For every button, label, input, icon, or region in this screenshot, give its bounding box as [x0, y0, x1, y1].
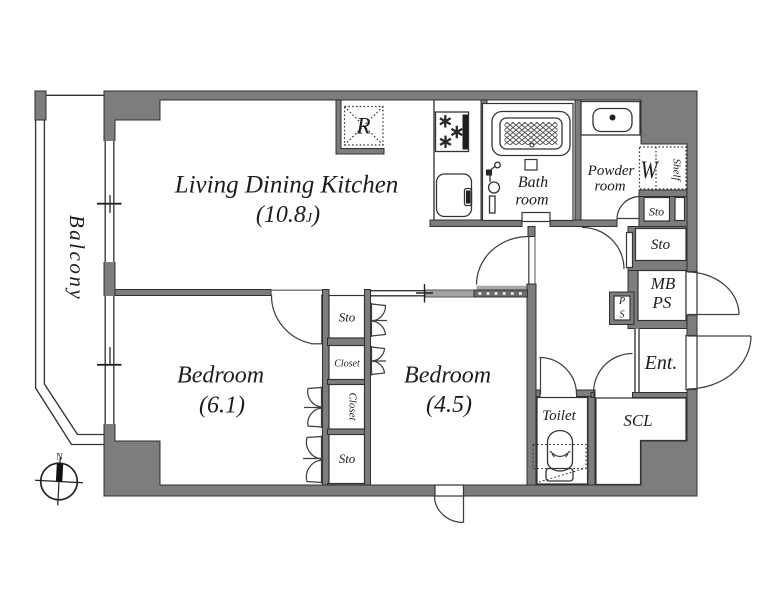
svg-text:Closet: Closet — [334, 359, 360, 370]
svg-text:Toilet: Toilet — [542, 408, 576, 424]
svg-text:S: S — [620, 310, 625, 321]
svg-text:(6.1): (6.1) — [199, 393, 245, 419]
svg-text:Powder: Powder — [587, 163, 635, 179]
svg-text:room: room — [594, 179, 625, 195]
svg-text:Living Dining Kitchen: Living Dining Kitchen — [174, 172, 399, 199]
svg-text:room: room — [515, 192, 548, 209]
svg-text:PS: PS — [652, 293, 672, 312]
svg-text:Bedroom: Bedroom — [177, 363, 264, 389]
svg-text:Closet: Closet — [347, 392, 359, 421]
svg-text:MB: MB — [650, 274, 676, 293]
svg-text:Sto: Sto — [651, 237, 671, 253]
svg-text:Balcony: Balcony — [65, 215, 89, 301]
svg-text:N: N — [56, 452, 63, 462]
svg-text:SCL: SCL — [623, 411, 652, 430]
svg-text:Ent.: Ent. — [644, 352, 678, 374]
svg-text:Sto: Sto — [339, 451, 356, 466]
svg-text:P: P — [618, 296, 625, 307]
svg-text:W: W — [640, 156, 659, 183]
svg-text:R: R — [355, 114, 370, 139]
svg-text:Bath: Bath — [518, 174, 548, 191]
svg-text:Sto: Sto — [339, 310, 356, 325]
svg-text:(4.5): (4.5) — [426, 392, 472, 418]
svg-text:Shelf: Shelf — [671, 159, 683, 183]
svg-text:Bedroom: Bedroom — [404, 363, 491, 389]
svg-text:Sto: Sto — [649, 205, 664, 219]
